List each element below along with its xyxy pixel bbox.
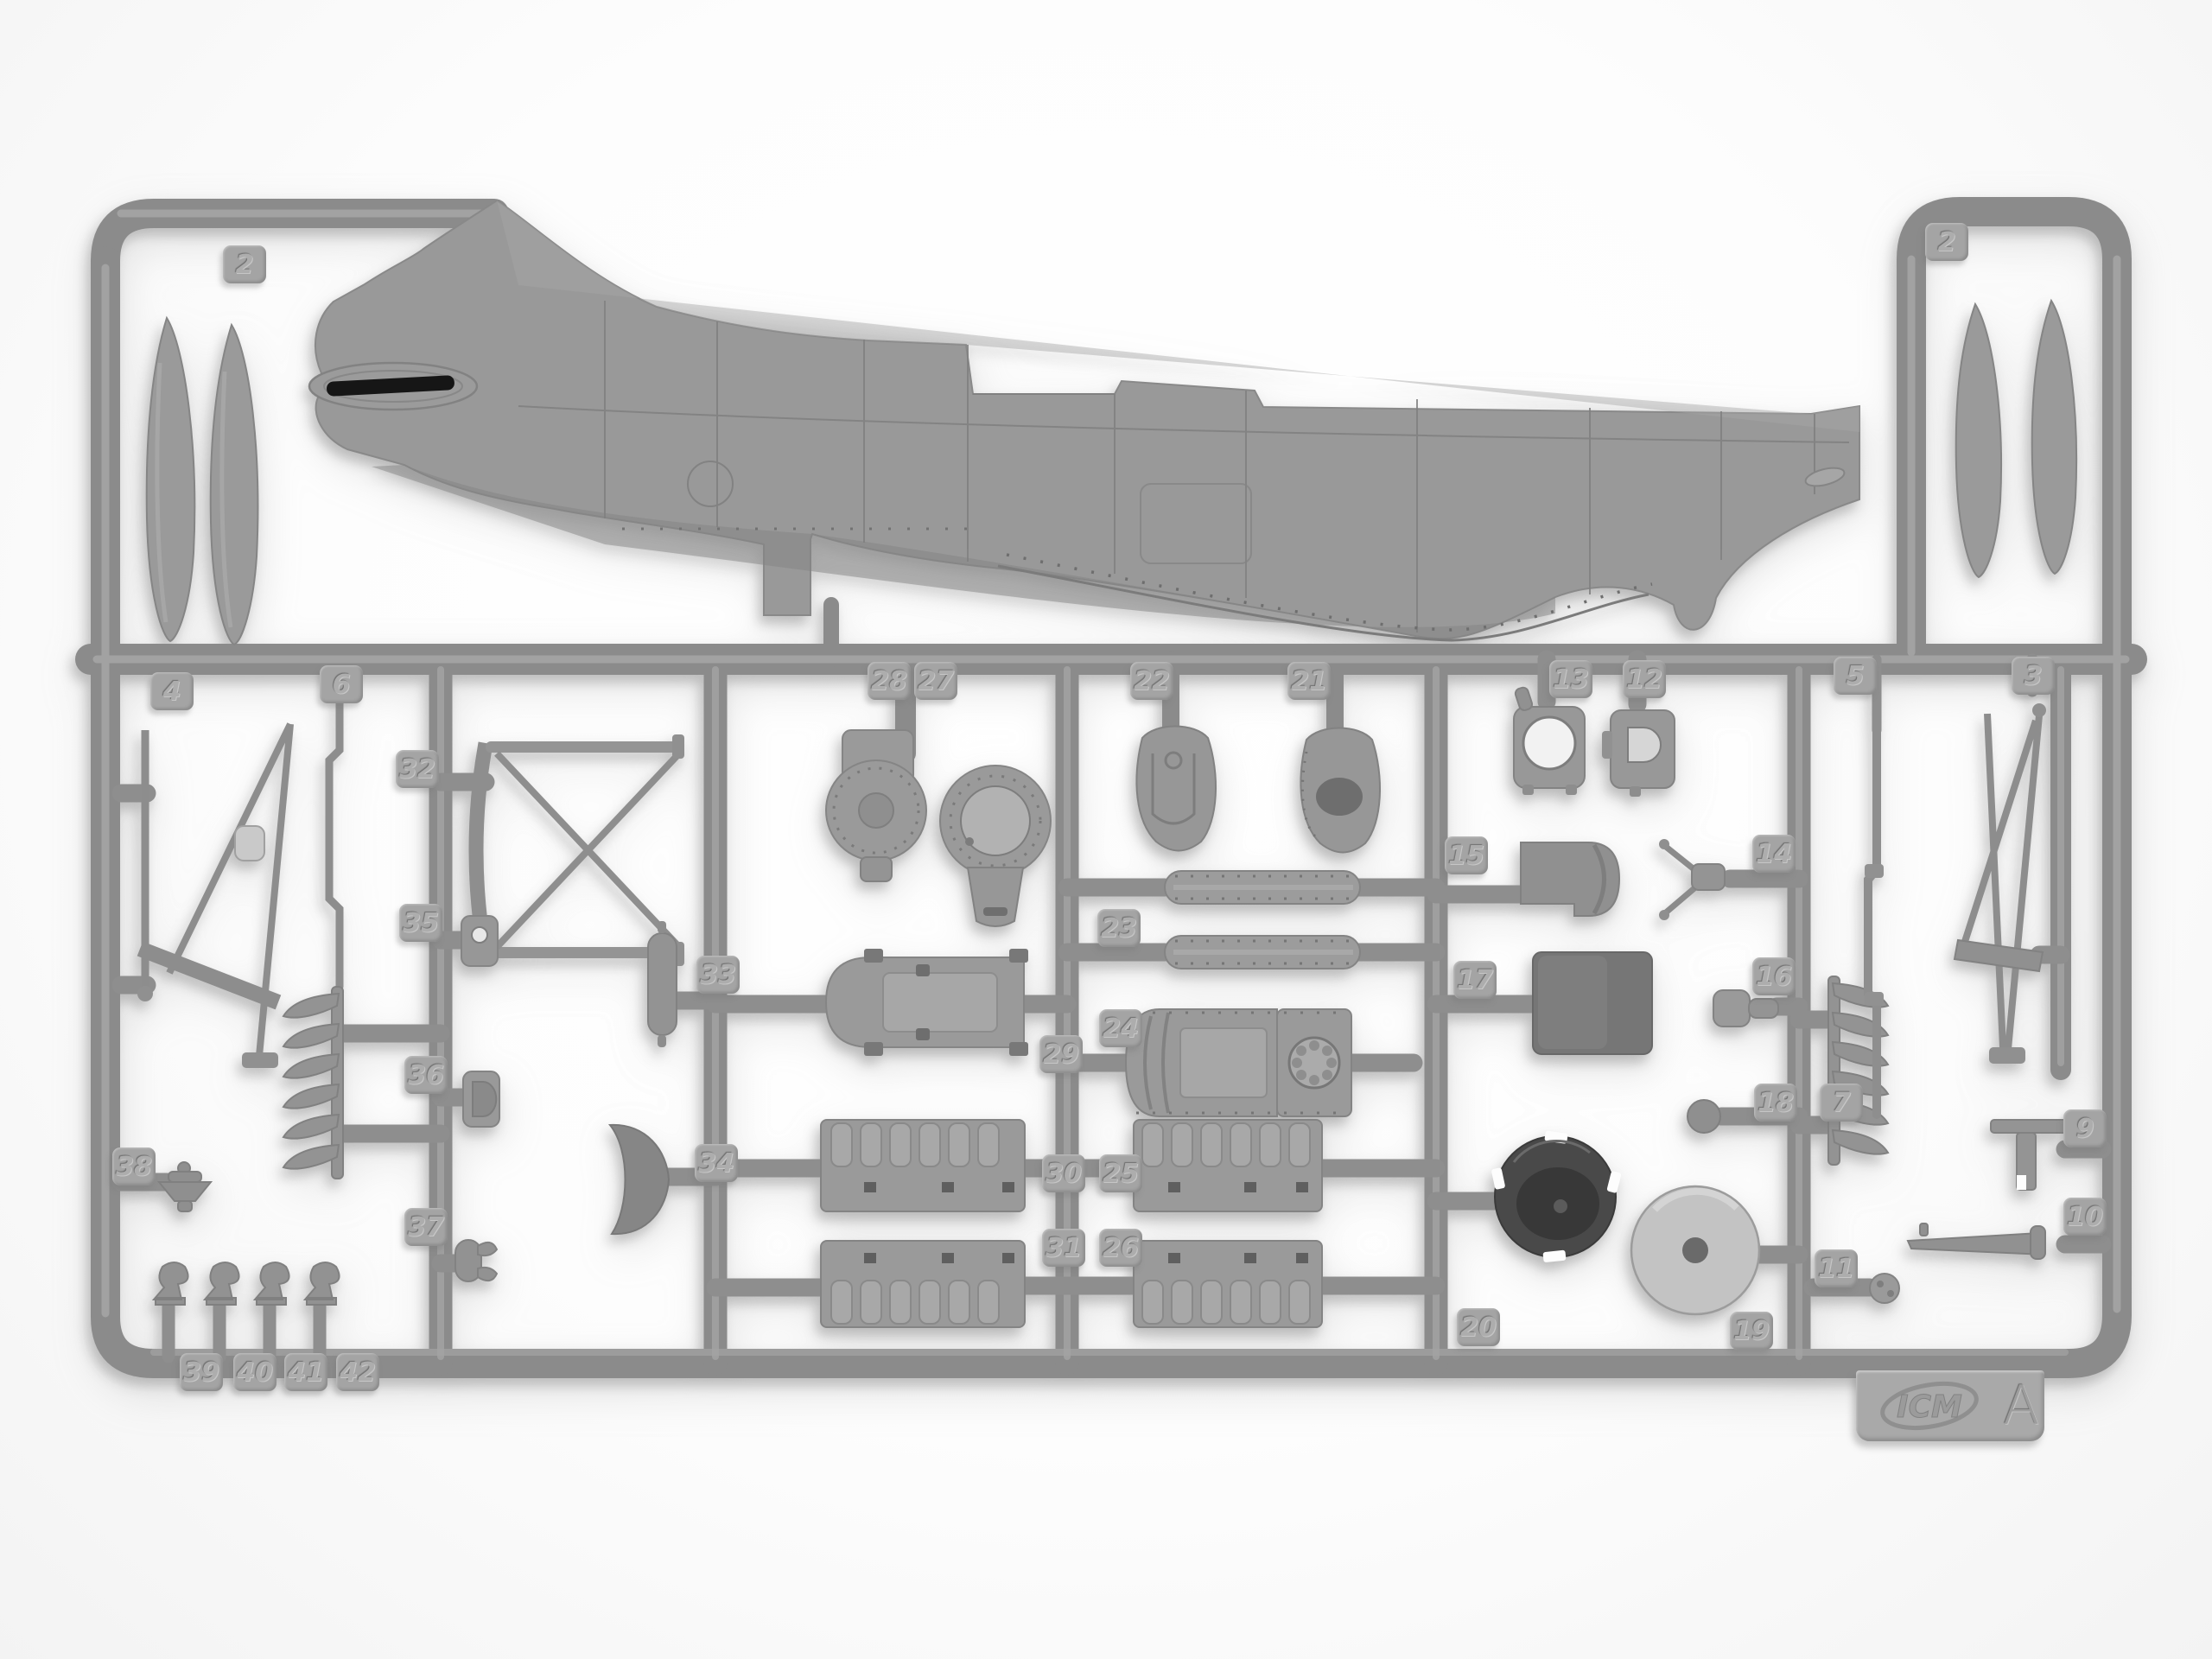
seat-part-22 bbox=[1136, 727, 1216, 851]
part-tag-33: 33 bbox=[696, 956, 740, 994]
brand-tab: ICM A bbox=[1856, 1370, 2044, 1441]
t-bracket-part-9 bbox=[1991, 1120, 2067, 1190]
tire-part-34 bbox=[610, 1125, 669, 1234]
equipment-box-part-29 bbox=[826, 949, 1028, 1056]
lug-part-35 bbox=[461, 916, 498, 966]
part-tag-10: 10 bbox=[2063, 1198, 2107, 1236]
part-tag-number: 19 bbox=[1733, 1316, 1770, 1346]
trestle-part-32 bbox=[476, 734, 684, 966]
part-tag-7: 7 bbox=[1820, 1084, 1863, 1122]
radiator-part-25 bbox=[1134, 1120, 1322, 1211]
part-tag-number: 3 bbox=[2024, 661, 2043, 691]
half-cylinder-part-15 bbox=[1521, 842, 1619, 916]
part-tag-11: 11 bbox=[1815, 1249, 1858, 1287]
part-tag-number: 35 bbox=[403, 908, 439, 938]
drum-part-17 bbox=[1533, 952, 1652, 1054]
part-tag-6: 6 bbox=[320, 665, 363, 703]
part-tag-34: 34 bbox=[695, 1144, 738, 1182]
part-tag-number: 7 bbox=[1833, 1088, 1851, 1118]
part-tag-26: 26 bbox=[1099, 1229, 1142, 1267]
part-tag-number: 36 bbox=[408, 1060, 444, 1090]
roller-part-33 bbox=[648, 921, 677, 1047]
part-tag-28: 28 bbox=[868, 662, 911, 700]
part-tag-number: 2 bbox=[1938, 227, 1956, 257]
part-tag-12: 12 bbox=[1623, 660, 1666, 698]
part-tag-9: 9 bbox=[2063, 1109, 2107, 1147]
landing-gear-strut-part-4 bbox=[137, 724, 290, 1068]
part-tag-number: 25 bbox=[1103, 1159, 1139, 1189]
part-tag-41: 41 bbox=[284, 1353, 327, 1391]
part-tag-number: 31 bbox=[1046, 1233, 1082, 1263]
part-tag-number: 26 bbox=[1103, 1233, 1139, 1263]
part-tag-number: 6 bbox=[333, 670, 351, 700]
small-roller-part bbox=[235, 826, 264, 861]
brand-logo-text: ICM bbox=[1897, 1389, 1962, 1425]
part-tag-number: 9 bbox=[2076, 1114, 2094, 1144]
part-tag-number: 21 bbox=[1291, 666, 1327, 696]
part-tag-number: 20 bbox=[1460, 1313, 1497, 1343]
part-tag-23: 23 bbox=[1097, 909, 1141, 947]
part-tag-number: 11 bbox=[1818, 1254, 1854, 1284]
part-tag-24: 24 bbox=[1099, 1009, 1142, 1047]
part-tag-number: 16 bbox=[1756, 962, 1792, 992]
part-tag-36: 36 bbox=[404, 1056, 448, 1094]
part-tag-27: 27 bbox=[914, 662, 957, 700]
part-tag-5: 5 bbox=[1834, 657, 1877, 695]
part-tag-31: 31 bbox=[1042, 1229, 1085, 1267]
part-tag-number: 40 bbox=[237, 1357, 273, 1388]
sprue-photo: 2246323536373839404142333428272223242930… bbox=[0, 0, 2212, 1659]
part-tag-4: 4 bbox=[150, 672, 194, 710]
part-tag-25: 25 bbox=[1099, 1154, 1142, 1192]
part-tag-3: 3 bbox=[2012, 657, 2055, 695]
sprue-letter: A bbox=[2003, 1379, 2039, 1433]
part-tag-16: 16 bbox=[1752, 957, 1796, 995]
part-tag-40: 40 bbox=[233, 1353, 276, 1391]
part-tag-number: 4 bbox=[163, 677, 181, 707]
part-tag-number: 15 bbox=[1448, 841, 1484, 871]
part-tag-number: 12 bbox=[1626, 664, 1662, 695]
part-tag-20: 20 bbox=[1457, 1308, 1500, 1346]
part-tag-number: 18 bbox=[1758, 1088, 1794, 1118]
gun-barrel-part-10 bbox=[1908, 1224, 2045, 1259]
part-tag-number: 24 bbox=[1103, 1014, 1139, 1044]
bolt-part-16 bbox=[1713, 990, 1778, 1027]
part-tag-number: 38 bbox=[116, 1152, 152, 1182]
part-tag-number: 41 bbox=[288, 1357, 324, 1388]
part-tag-38: 38 bbox=[112, 1147, 156, 1185]
part-tag-17: 17 bbox=[1453, 961, 1497, 999]
part-tag-number: 10 bbox=[2067, 1202, 2103, 1232]
part-tag-number: 32 bbox=[399, 754, 435, 785]
radiator-part-30 bbox=[821, 1120, 1025, 1211]
part-tag-number: 37 bbox=[408, 1212, 444, 1243]
bracket-part-12 bbox=[1602, 710, 1675, 797]
part-tag-18: 18 bbox=[1754, 1084, 1797, 1122]
cover-part-21 bbox=[1300, 728, 1380, 853]
part-tag-number: 34 bbox=[698, 1148, 734, 1179]
small-disc-part-11 bbox=[1870, 1274, 1899, 1303]
bracket-part-37 bbox=[455, 1240, 497, 1281]
part-tag-number: 13 bbox=[1553, 664, 1589, 695]
part-tag-number: 29 bbox=[1043, 1039, 1079, 1070]
part-tag-39: 39 bbox=[180, 1353, 223, 1391]
access-door-part-36 bbox=[463, 1071, 499, 1127]
part-tag-13: 13 bbox=[1549, 660, 1592, 698]
part-tag-number: 39 bbox=[183, 1357, 219, 1388]
part-tag-number: 17 bbox=[1457, 965, 1493, 995]
radiator-part-31 bbox=[821, 1241, 1025, 1327]
part-tag-21: 21 bbox=[1287, 662, 1331, 700]
finial-part-38 bbox=[159, 1162, 211, 1211]
cowl-cap-part-28 bbox=[826, 730, 926, 881]
part-tag-15: 15 bbox=[1445, 836, 1488, 874]
hook-parts-39-42 bbox=[154, 1262, 340, 1305]
exhaust-stacks-left bbox=[283, 987, 343, 1179]
part-tag-30: 30 bbox=[1042, 1154, 1085, 1192]
part-tag-35: 35 bbox=[399, 904, 442, 942]
fuselage-half-part bbox=[309, 200, 1859, 640]
rod-part-6 bbox=[329, 679, 340, 987]
disc-part-18 bbox=[1688, 1100, 1720, 1133]
part-tag-2: 2 bbox=[1925, 223, 1968, 261]
part-tag-number: 27 bbox=[918, 666, 954, 696]
part-tag-number: 42 bbox=[340, 1357, 376, 1388]
part-tag-number: 33 bbox=[700, 960, 736, 990]
part-tag-2: 2 bbox=[223, 245, 266, 283]
cannon-fairings-part-23 bbox=[1165, 871, 1360, 969]
part-tag-19: 19 bbox=[1730, 1312, 1773, 1350]
oil-cooler-part-24 bbox=[1126, 1009, 1351, 1116]
wishbone-part-14 bbox=[1659, 839, 1725, 920]
spinner-cup-part-20 bbox=[1491, 1130, 1622, 1262]
part-tag-number: 23 bbox=[1101, 913, 1137, 944]
icm-logo-icon: ICM bbox=[1878, 1379, 1980, 1433]
gear-ring-part-27 bbox=[940, 766, 1051, 926]
part-tag-14: 14 bbox=[1752, 835, 1796, 873]
part-tag-number: 2 bbox=[236, 250, 254, 280]
part-tag-number: 22 bbox=[1134, 666, 1170, 696]
landing-gear-strut-part-3 bbox=[1955, 703, 2046, 1064]
part-tag-42: 42 bbox=[336, 1353, 379, 1391]
part-tag-29: 29 bbox=[1039, 1035, 1083, 1073]
part-tag-number: 14 bbox=[1756, 839, 1792, 869]
wheel-disc-part-19 bbox=[1631, 1186, 1759, 1314]
part-tag-22: 22 bbox=[1130, 662, 1173, 700]
radiator-part-26 bbox=[1134, 1241, 1322, 1327]
part-tag-number: 28 bbox=[871, 666, 907, 696]
part-tag-number: 30 bbox=[1046, 1159, 1082, 1189]
part-tag-number: 5 bbox=[1847, 661, 1865, 691]
part-tag-32: 32 bbox=[396, 750, 439, 788]
part-tag-37: 37 bbox=[404, 1208, 448, 1246]
